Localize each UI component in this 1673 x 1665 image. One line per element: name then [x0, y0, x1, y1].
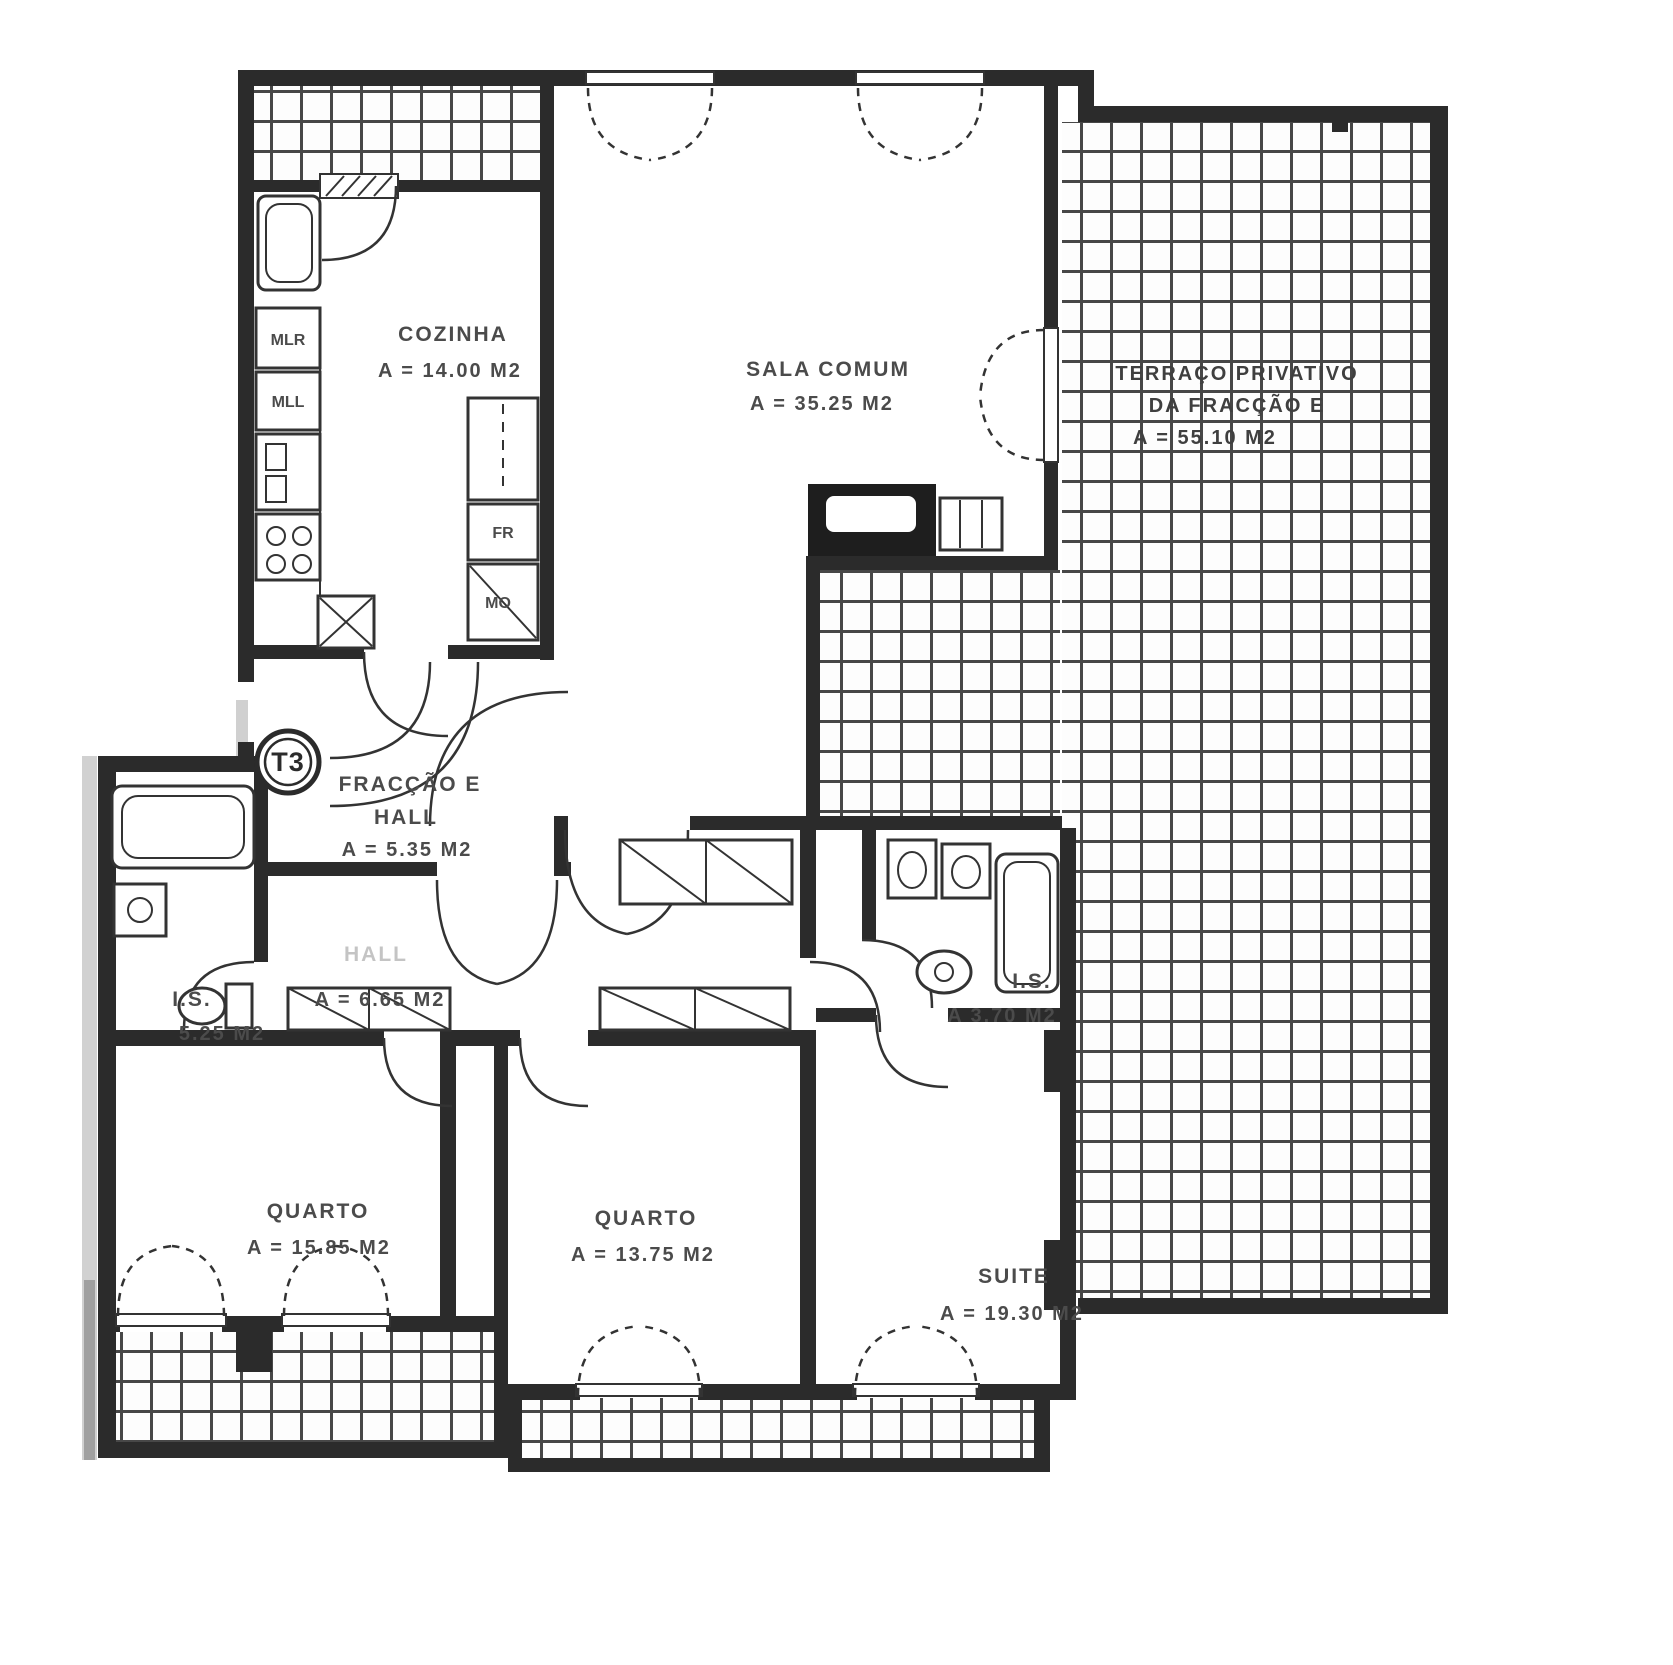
room-label-is-direita: I.S. — [1012, 970, 1052, 993]
room-label-hall-entrada: HALL — [374, 806, 438, 829]
room-label-suite: SUITE — [978, 1265, 1050, 1288]
room-area-terraco: A = 55.10 M2 — [1133, 427, 1277, 449]
bidet-right — [888, 840, 936, 898]
hatch-window — [320, 174, 398, 198]
hall-arch-right-leaf — [497, 880, 557, 984]
room-label-cozinha: COZINHA — [398, 323, 508, 346]
room-area-suite: A = 19.30 M2 — [940, 1303, 1084, 1325]
sala-window-1 — [588, 88, 712, 160]
room-area-quarto1: A = 15.85 M2 — [247, 1237, 391, 1259]
sala-window-2 — [858, 88, 982, 160]
appliance-label-mll: MLL — [272, 394, 305, 411]
vent-box — [940, 498, 1002, 550]
stove — [256, 514, 320, 580]
room-area-hall-interior: A = 6.65 M2 — [315, 989, 446, 1011]
laundry-tub — [258, 196, 320, 290]
room-label-hall-interior: HALL — [344, 943, 408, 966]
sala-hall2-arch-left-leaf — [565, 830, 627, 934]
wardrobe-quarto2 — [600, 988, 790, 1030]
room-label-terraco-1: TERRAÇO PRIVATIVO — [1115, 363, 1358, 385]
room-label-quarto2: QUARTO — [595, 1207, 698, 1230]
room-area-quarto2: A = 13.75 M2 — [571, 1244, 715, 1266]
room-label-quarto1: QUARTO — [267, 1200, 370, 1223]
floor-plan-page: T3 COZINHA A = 14.00 M2 SALA COMUM A = 3… — [0, 0, 1673, 1665]
duct — [808, 484, 936, 556]
room-label-sala: SALA COMUM — [746, 358, 910, 381]
quarto1-window-1 — [118, 1246, 224, 1316]
balcony-top-left-tiles — [254, 86, 540, 180]
unit-badge-label: T3 — [271, 747, 305, 777]
appliance-label-mo: MO — [485, 595, 511, 612]
toilet-right — [942, 844, 990, 898]
appliance-label-fr: FR — [492, 525, 514, 542]
suite-door-arc — [876, 1015, 948, 1087]
floor-plan-drawing: T3 COZINHA A = 14.00 M2 SALA COMUM A = 3… — [0, 0, 1673, 1665]
unit-badge: T3 — [257, 731, 319, 793]
room-label-terraco-2: DA FRACÇÃO E — [1149, 394, 1326, 417]
sala-terrace-door — [980, 330, 1044, 460]
terrace-main-tiles — [1062, 122, 1430, 1298]
hall-arch-left-leaf — [437, 880, 497, 984]
room-label-fraccao: FRACÇÃO E — [339, 773, 482, 796]
room-area-cozinha: A = 14.00 M2 — [378, 360, 522, 382]
room-area-sala: A = 35.25 M2 — [750, 393, 894, 415]
washbasin-right — [917, 951, 971, 993]
wardrobe-hall — [620, 840, 792, 904]
room-area-is-esquerda: 5.25 M2 — [179, 1023, 265, 1045]
room-area-is-direita: A 3.70 M2 — [947, 1005, 1057, 1027]
balcony-bottom-center-tiles — [522, 1398, 1034, 1458]
terrace-mid-tiles — [820, 570, 1060, 816]
kitchen-sink — [318, 596, 374, 648]
appliance-label-mlr: MLR — [271, 332, 306, 349]
room-area-hall-entrada: A = 5.35 M2 — [342, 839, 473, 861]
room-label-is-esquerda: I.S. — [172, 988, 212, 1011]
washbasin-left — [114, 884, 166, 936]
kitchen-door-arc — [364, 652, 448, 736]
tall-cabinet — [468, 398, 538, 500]
balcony-bottom-left-tiles — [116, 1332, 494, 1442]
kitchen-counter-units — [256, 434, 320, 510]
quarto2-door-arc — [520, 1038, 588, 1106]
bathtub-left — [112, 786, 254, 868]
